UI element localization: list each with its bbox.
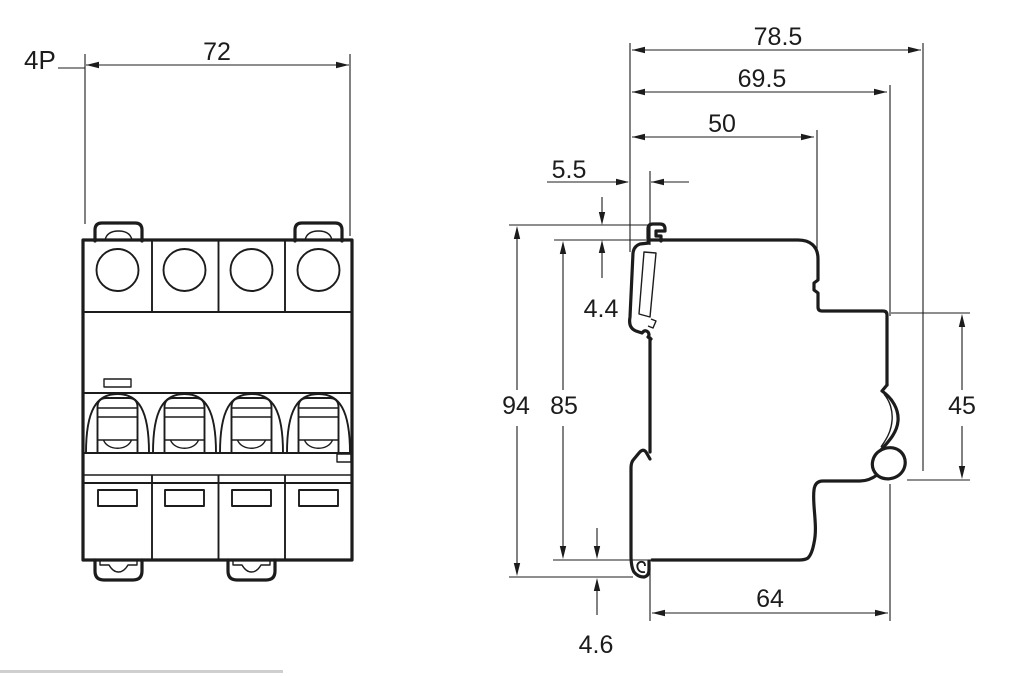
dim-94-label: 94 — [502, 392, 530, 420]
side-top-and-step-outline — [651, 240, 887, 385]
front-top-mounting-tab-left — [95, 223, 142, 241]
terminal-port — [164, 249, 206, 291]
dim-depth-to-front-face: 69.5 — [632, 65, 890, 316]
front-bottom-mounting-tab-left — [95, 560, 142, 580]
side-back-clip-upper-inner — [639, 252, 656, 317]
dim-78.5-label: 78.5 — [754, 23, 803, 51]
label-window — [165, 490, 204, 506]
pole-count-label: 4P — [24, 45, 56, 75]
arrowhead — [560, 241, 566, 254]
dim-50-label: 50 — [708, 110, 736, 138]
toggle-handle-pole1 — [86, 394, 149, 453]
arrowhead — [959, 466, 965, 479]
arrowhead — [599, 240, 605, 253]
arrowhead — [875, 610, 888, 616]
arrowhead — [632, 134, 645, 140]
arrowhead — [801, 134, 814, 140]
dimensions: 4P 72 78.5 69.5 — [24, 23, 976, 659]
arrowhead — [632, 89, 645, 95]
arrowhead — [632, 47, 645, 53]
toggle-handle-pole2 — [153, 394, 216, 453]
toggle-handle-pole3 — [220, 394, 283, 453]
breaker-dimension-drawing: 4P 72 78.5 69.5 — [0, 0, 1020, 676]
arrowhead — [616, 179, 629, 185]
dim-4.6-label: 4.6 — [579, 631, 614, 659]
dim-72-label: 72 — [203, 38, 231, 66]
label-window — [299, 490, 338, 506]
arrowhead — [514, 226, 520, 239]
arrowhead — [599, 212, 605, 225]
dim-rail-clip-overhang: 5.5 — [547, 156, 689, 245]
arrowhead — [336, 62, 349, 68]
arrowhead — [514, 563, 520, 576]
arrowhead — [594, 578, 600, 591]
dim-85-label: 85 — [550, 392, 578, 420]
toggle-handle-pole4 — [287, 394, 350, 453]
dim-body-height: 85 — [550, 241, 650, 560]
dim-5.5-label: 5.5 — [552, 156, 587, 184]
arrowhead — [594, 546, 600, 559]
arrowhead — [874, 89, 887, 95]
arrowhead — [86, 62, 99, 68]
terminal-port — [231, 249, 273, 291]
terminal-port — [97, 249, 139, 291]
dim-64-label: 64 — [756, 585, 784, 613]
dimension-drawing-page: 4P 72 78.5 69.5 — [0, 0, 1020, 676]
front-bottom-mounting-tab-right — [228, 560, 275, 580]
arrowhead — [959, 314, 965, 327]
arrowhead — [908, 47, 921, 53]
arrowhead — [652, 610, 665, 616]
dim-base-depth: 64 — [650, 484, 890, 621]
label-window — [98, 490, 137, 506]
page-edge-rule — [0, 670, 283, 673]
dim-4.4-label: 4.4 — [584, 295, 619, 323]
side-bottom-step-outline — [652, 475, 877, 560]
side-toggle-bulge — [881, 385, 898, 450]
label-window — [232, 490, 271, 506]
front-top-mounting-tab-right — [295, 223, 342, 241]
dim-45-label: 45 — [948, 392, 976, 420]
front-body-outline — [83, 240, 352, 560]
dim-front-width: 4P 72 — [24, 38, 350, 236]
marking-window — [104, 379, 131, 387]
front-view — [83, 223, 352, 580]
side-din-rail-clip — [631, 450, 650, 577]
side-din-rail-clip-curl — [637, 562, 645, 572]
side-back-clip-upper-foot — [648, 319, 656, 328]
dim-bottom-clip-offset: 4.6 — [579, 528, 614, 659]
rocker-notch — [337, 454, 351, 462]
terminal-port — [298, 249, 340, 291]
side-view — [630, 224, 906, 577]
arrowhead — [651, 179, 664, 185]
dim-69.5-label: 69.5 — [738, 65, 787, 93]
dim-top-clip-offset: 4.4 — [509, 197, 648, 323]
arrowhead — [560, 546, 566, 559]
